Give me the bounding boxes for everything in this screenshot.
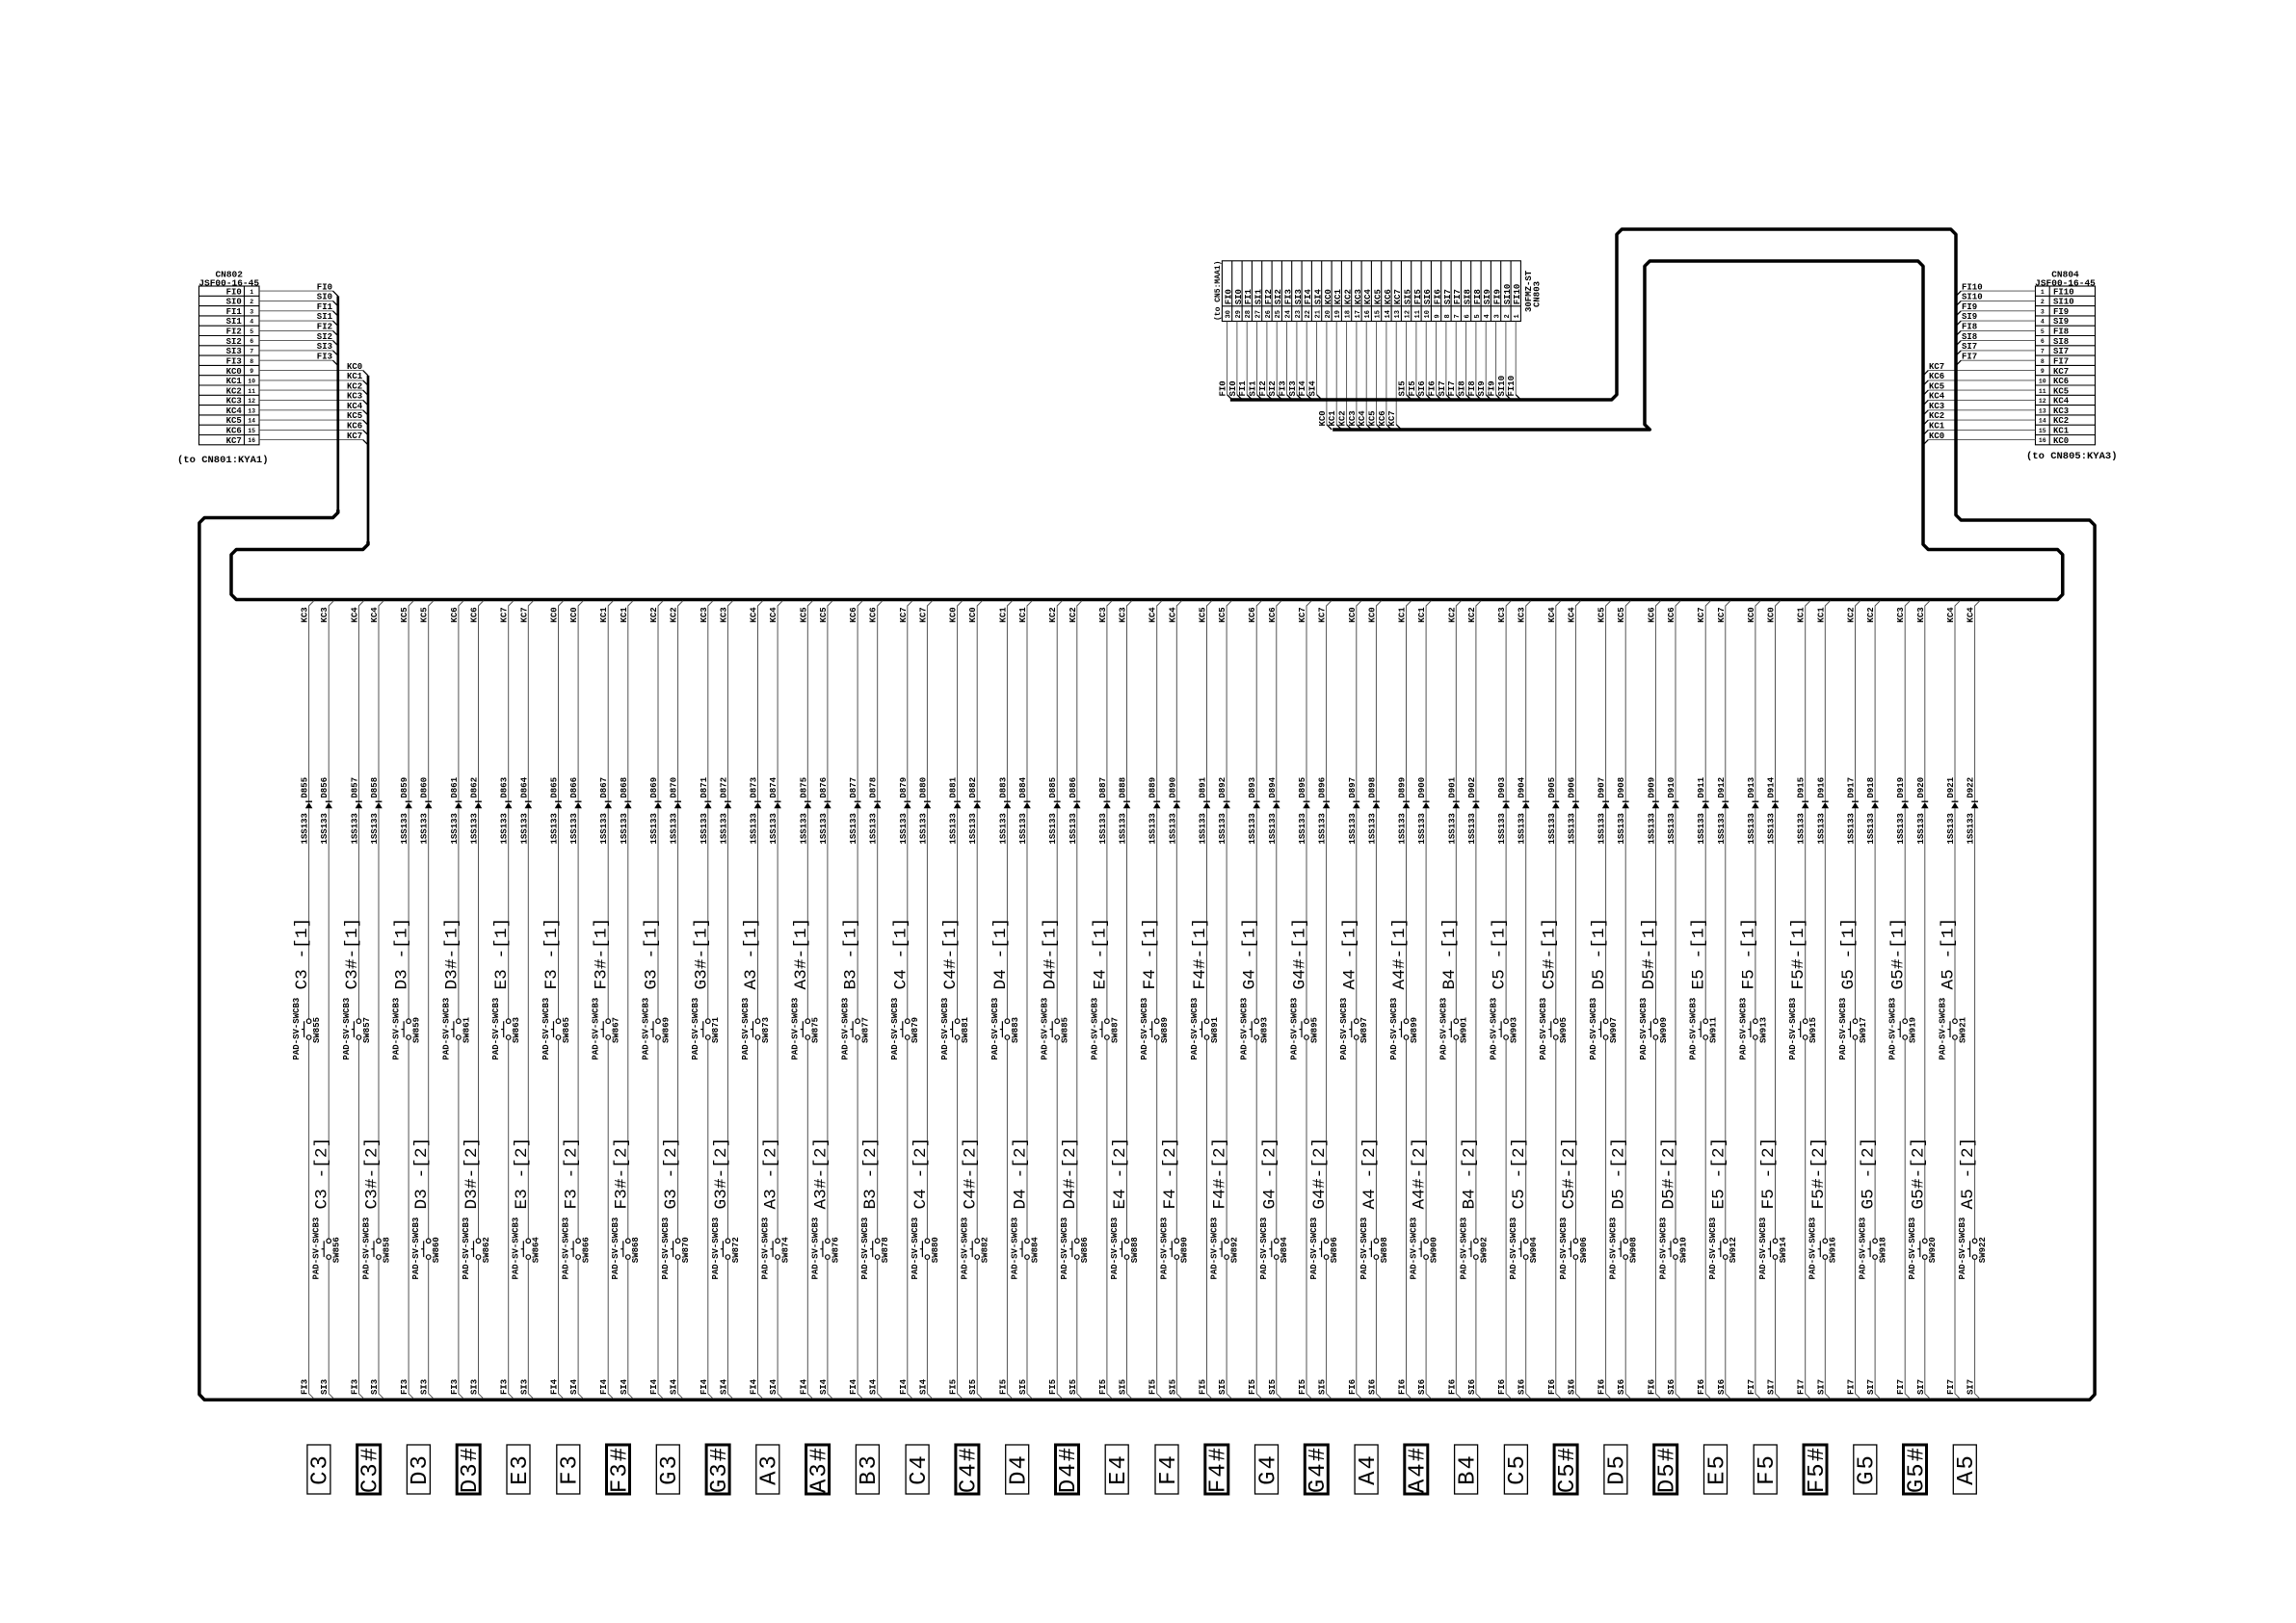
svg-text:1SS133: 1SS133 bbox=[719, 813, 728, 844]
svg-text:4: 4 bbox=[1484, 314, 1491, 318]
svg-text:D872: D872 bbox=[719, 777, 728, 798]
svg-text:2: 2 bbox=[250, 299, 253, 305]
svg-text:SW864: SW864 bbox=[532, 1237, 541, 1264]
svg-text:SW905: SW905 bbox=[1559, 1017, 1569, 1043]
svg-text:PAD-SV-SWCB3: PAD-SV-SWCB3 bbox=[361, 1217, 371, 1280]
svg-text:D892: D892 bbox=[1218, 777, 1227, 798]
svg-text:KC4: KC4 bbox=[370, 607, 380, 623]
svg-text:1SS133: 1SS133 bbox=[1697, 813, 1706, 844]
svg-text:SW892: SW892 bbox=[1230, 1237, 1240, 1263]
svg-text:PAD-SV-SWCB3: PAD-SV-SWCB3 bbox=[1639, 998, 1649, 1060]
svg-text:1SS133: 1SS133 bbox=[350, 813, 359, 844]
svg-text:D859: D859 bbox=[400, 777, 409, 798]
svg-text:C5 -[2]: C5 -[2] bbox=[1510, 1138, 1529, 1210]
svg-text:A4#-[2]: A4#-[2] bbox=[1411, 1138, 1430, 1210]
svg-text:E3 -[1]: E3 -[1] bbox=[492, 918, 512, 990]
svg-text:7: 7 bbox=[250, 349, 253, 355]
svg-text:SW908: SW908 bbox=[1629, 1237, 1639, 1263]
svg-text:SW884: SW884 bbox=[1030, 1237, 1040, 1264]
svg-text:KC4: KC4 bbox=[1148, 607, 1158, 623]
svg-text:1SS133: 1SS133 bbox=[1218, 813, 1227, 844]
svg-text:SW874: SW874 bbox=[781, 1237, 791, 1264]
svg-text:G5#-[2]: G5#-[2] bbox=[1909, 1138, 1928, 1210]
svg-text:SW860: SW860 bbox=[432, 1237, 441, 1263]
svg-text:SI4: SI4 bbox=[918, 1378, 928, 1395]
svg-text:D4: D4 bbox=[1007, 1453, 1033, 1485]
svg-text:KC6: KC6 bbox=[347, 422, 362, 432]
svg-text:D4#-[2]: D4#-[2] bbox=[1061, 1138, 1080, 1210]
svg-text:D909: D909 bbox=[1647, 777, 1656, 798]
svg-text:SW904: SW904 bbox=[1529, 1237, 1539, 1264]
svg-text:KC6: KC6 bbox=[1929, 372, 1944, 381]
svg-text:11: 11 bbox=[1414, 310, 1422, 318]
svg-text:D877: D877 bbox=[849, 777, 858, 798]
svg-text:SI7: SI7 bbox=[1438, 380, 1447, 396]
svg-text:SW856: SW856 bbox=[332, 1237, 342, 1263]
svg-text:SI7: SI7 bbox=[1916, 1379, 1926, 1395]
svg-text:PAD-SV-SWCB3: PAD-SV-SWCB3 bbox=[462, 1217, 471, 1280]
svg-text:KC2: KC2 bbox=[1048, 607, 1058, 622]
svg-text:D881: D881 bbox=[949, 776, 959, 798]
svg-text:SW900: SW900 bbox=[1430, 1237, 1439, 1263]
svg-text:KC5: KC5 bbox=[226, 416, 242, 426]
svg-text:D866: D866 bbox=[569, 777, 579, 798]
svg-text:KC7: KC7 bbox=[1717, 607, 1727, 622]
svg-text:KC1: KC1 bbox=[2053, 427, 2070, 436]
svg-text:SI10: SI10 bbox=[2053, 298, 2074, 307]
svg-text:13: 13 bbox=[248, 407, 255, 414]
svg-text:SI5: SI5 bbox=[1404, 289, 1413, 304]
svg-text:KC4: KC4 bbox=[769, 607, 779, 623]
svg-text:FI0: FI0 bbox=[317, 282, 332, 292]
svg-text:FI3: FI3 bbox=[1284, 289, 1294, 304]
svg-text:A3#-[2]: A3#-[2] bbox=[811, 1138, 831, 1210]
svg-text:7: 7 bbox=[1454, 314, 1462, 318]
svg-text:2: 2 bbox=[2041, 299, 2045, 305]
svg-text:PAD-SV-SWCB3: PAD-SV-SWCB3 bbox=[661, 1217, 671, 1280]
svg-text:SI9: SI9 bbox=[1477, 380, 1487, 396]
svg-text:FI5: FI5 bbox=[998, 1379, 1008, 1395]
svg-text:B3 -[2]: B3 -[2] bbox=[861, 1138, 881, 1210]
svg-text:SI9: SI9 bbox=[2053, 317, 2069, 327]
svg-text:8: 8 bbox=[2041, 358, 2045, 365]
svg-text:SW868: SW868 bbox=[631, 1237, 641, 1263]
svg-text:FI1: FI1 bbox=[1238, 380, 1248, 397]
svg-text:(to CN5:MAA1): (to CN5:MAA1) bbox=[1214, 261, 1223, 321]
svg-text:1SS133: 1SS133 bbox=[1367, 813, 1377, 844]
svg-text:FI6: FI6 bbox=[1447, 1379, 1457, 1395]
svg-text:B3: B3 bbox=[857, 1453, 883, 1485]
svg-text:FI10: FI10 bbox=[2053, 287, 2074, 297]
svg-text:15: 15 bbox=[2039, 428, 2046, 434]
svg-text:G4 -[2]: G4 -[2] bbox=[1260, 1138, 1280, 1210]
svg-text:1SS133: 1SS133 bbox=[649, 813, 659, 844]
svg-text:1SS133: 1SS133 bbox=[1098, 813, 1108, 844]
svg-text:25: 25 bbox=[1275, 310, 1282, 318]
svg-text:10: 10 bbox=[248, 379, 255, 385]
svg-text:SI4: SI4 bbox=[719, 1378, 728, 1395]
svg-text:SI5: SI5 bbox=[1168, 1379, 1177, 1395]
svg-text:12: 12 bbox=[2039, 398, 2046, 405]
svg-text:KC2: KC2 bbox=[2053, 416, 2069, 426]
svg-text:F3#: F3# bbox=[607, 1446, 633, 1493]
svg-text:KC6: KC6 bbox=[1248, 607, 1257, 622]
svg-text:SI6: SI6 bbox=[1567, 1379, 1576, 1395]
svg-text:1SS133: 1SS133 bbox=[1517, 813, 1527, 844]
svg-text:KC0: KC0 bbox=[347, 362, 362, 372]
svg-text:D871: D871 bbox=[699, 776, 709, 798]
svg-text:D921: D921 bbox=[1946, 776, 1956, 798]
svg-text:SW862: SW862 bbox=[482, 1237, 491, 1263]
svg-text:PAD-SV-SWCB3: PAD-SV-SWCB3 bbox=[1041, 998, 1050, 1060]
svg-text:PAD-SV-SWCB3: PAD-SV-SWCB3 bbox=[562, 1217, 571, 1280]
svg-text:PAD-SV-SWCB3: PAD-SV-SWCB3 bbox=[1389, 998, 1399, 1060]
svg-text:A3#-[1]: A3#-[1] bbox=[792, 918, 811, 990]
svg-text:C3: C3 bbox=[308, 1453, 334, 1485]
svg-text:PAD-SV-SWCB3: PAD-SV-SWCB3 bbox=[592, 998, 601, 1060]
svg-text:SW870: SW870 bbox=[681, 1237, 691, 1263]
svg-text:SI5: SI5 bbox=[1268, 1379, 1278, 1395]
svg-text:SI4: SI4 bbox=[869, 1378, 879, 1395]
svg-text:SW881: SW881 bbox=[961, 1016, 970, 1043]
svg-text:KC4: KC4 bbox=[1363, 288, 1373, 304]
svg-text:1SS133: 1SS133 bbox=[699, 813, 709, 844]
svg-text:PAD-SV-SWCB3: PAD-SV-SWCB3 bbox=[1708, 1217, 1718, 1280]
svg-text:FI0: FI0 bbox=[1219, 380, 1228, 396]
svg-text:D3#-[2]: D3#-[2] bbox=[462, 1138, 482, 1210]
svg-text:SI4: SI4 bbox=[670, 1378, 679, 1395]
svg-text:FI1: FI1 bbox=[226, 307, 243, 317]
svg-text:SI0: SI0 bbox=[1228, 380, 1238, 396]
svg-text:B4 -[2]: B4 -[2] bbox=[1460, 1138, 1479, 1210]
svg-text:SI5: SI5 bbox=[968, 1379, 978, 1395]
svg-text:14: 14 bbox=[1385, 310, 1392, 318]
svg-text:SI3: SI3 bbox=[519, 1379, 529, 1395]
svg-text:KC0: KC0 bbox=[2053, 436, 2069, 446]
svg-text:SI1: SI1 bbox=[1249, 380, 1258, 397]
svg-text:PAD-SV-SWCB3: PAD-SV-SWCB3 bbox=[512, 1217, 521, 1280]
svg-text:PAD-SV-SWCB3: PAD-SV-SWCB3 bbox=[1210, 1217, 1220, 1280]
svg-text:PAD-SV-SWCB3: PAD-SV-SWCB3 bbox=[1689, 998, 1699, 1060]
svg-text:(to CN801:KYA1): (to CN801:KYA1) bbox=[177, 455, 269, 466]
svg-text:SW882: SW882 bbox=[981, 1237, 990, 1263]
svg-text:D893: D893 bbox=[1248, 777, 1257, 798]
svg-text:PAD-SV-SWCB3: PAD-SV-SWCB3 bbox=[810, 1217, 820, 1280]
svg-text:1SS133: 1SS133 bbox=[1398, 813, 1408, 844]
svg-text:13: 13 bbox=[2039, 407, 2046, 414]
svg-text:1SS133: 1SS133 bbox=[968, 813, 978, 844]
svg-text:B4: B4 bbox=[1455, 1453, 1481, 1485]
svg-text:KC6: KC6 bbox=[450, 607, 460, 622]
svg-text:D876: D876 bbox=[819, 777, 829, 798]
svg-text:D889: D889 bbox=[1148, 777, 1158, 798]
svg-text:KC3: KC3 bbox=[2053, 406, 2069, 416]
svg-text:1SS133: 1SS133 bbox=[869, 813, 879, 844]
svg-text:D903: D903 bbox=[1497, 777, 1507, 798]
svg-text:A4 -[1]: A4 -[1] bbox=[1340, 918, 1359, 990]
svg-text:FI4: FI4 bbox=[849, 1378, 858, 1395]
svg-text:PAD-SV-SWCB3: PAD-SV-SWCB3 bbox=[312, 1217, 322, 1280]
svg-text:C5#-[1]: C5#-[1] bbox=[1540, 918, 1559, 990]
svg-text:FI4: FI4 bbox=[649, 1378, 659, 1395]
svg-text:KC0: KC0 bbox=[1929, 432, 1944, 441]
svg-text:C3#-[2]: C3#-[2] bbox=[363, 1138, 383, 1210]
svg-text:SW907: SW907 bbox=[1609, 1017, 1619, 1043]
svg-text:KC5: KC5 bbox=[1199, 607, 1208, 622]
svg-text:D3#-[1]: D3#-[1] bbox=[442, 918, 462, 990]
svg-text:D5 -[2]: D5 -[2] bbox=[1610, 1138, 1629, 1210]
svg-text:1SS133: 1SS133 bbox=[550, 813, 560, 844]
svg-text:SI6: SI6 bbox=[1423, 289, 1433, 304]
svg-text:SI4: SI4 bbox=[620, 1378, 629, 1395]
svg-text:SI7: SI7 bbox=[1866, 1379, 1876, 1395]
svg-text:9: 9 bbox=[1435, 314, 1442, 318]
svg-text:G5 -[1]: G5 -[1] bbox=[1839, 918, 1859, 990]
svg-text:SW906: SW906 bbox=[1579, 1237, 1589, 1263]
svg-text:1SS133: 1SS133 bbox=[1797, 813, 1807, 844]
svg-text:PAD-SV-SWCB3: PAD-SV-SWCB3 bbox=[1459, 1217, 1468, 1280]
svg-text:SW920: SW920 bbox=[1928, 1237, 1938, 1263]
svg-text:SW898: SW898 bbox=[1380, 1237, 1389, 1263]
svg-text:PAD-SV-SWCB3: PAD-SV-SWCB3 bbox=[1289, 998, 1299, 1060]
svg-text:D858: D858 bbox=[370, 777, 380, 798]
svg-text:D911: D911 bbox=[1697, 776, 1706, 798]
svg-text:PAD-SV-SWCB3: PAD-SV-SWCB3 bbox=[940, 998, 950, 1060]
svg-text:A5 -[2]: A5 -[2] bbox=[1959, 1138, 1978, 1210]
svg-text:SI9: SI9 bbox=[1483, 289, 1492, 304]
svg-text:SW888: SW888 bbox=[1130, 1237, 1140, 1263]
svg-text:PAD-SV-SWCB3: PAD-SV-SWCB3 bbox=[910, 1217, 920, 1280]
svg-text:1SS133: 1SS133 bbox=[1417, 813, 1427, 844]
svg-text:PAD-SV-SWCB3: PAD-SV-SWCB3 bbox=[1589, 998, 1598, 1060]
svg-text:D905: D905 bbox=[1547, 777, 1557, 798]
svg-text:C5#-[2]: C5#-[2] bbox=[1560, 1138, 1579, 1210]
svg-text:PAD-SV-SWCB3: PAD-SV-SWCB3 bbox=[342, 998, 352, 1060]
svg-text:D855: D855 bbox=[301, 777, 310, 798]
svg-text:D873: D873 bbox=[750, 777, 759, 798]
svg-text:SI3: SI3 bbox=[420, 1379, 430, 1395]
svg-text:KC3: KC3 bbox=[301, 607, 310, 622]
svg-text:1SS133: 1SS133 bbox=[370, 813, 380, 844]
svg-text:1SS133: 1SS133 bbox=[320, 813, 330, 844]
svg-text:KC3: KC3 bbox=[1497, 607, 1507, 622]
svg-text:4: 4 bbox=[2041, 319, 2045, 326]
svg-text:PAD-SV-SWCB3: PAD-SV-SWCB3 bbox=[1758, 1217, 1768, 1280]
svg-text:SW855: SW855 bbox=[312, 1017, 322, 1043]
svg-text:SI6: SI6 bbox=[1417, 1379, 1427, 1395]
svg-text:D883: D883 bbox=[998, 777, 1008, 798]
svg-text:SW886: SW886 bbox=[1080, 1237, 1090, 1263]
svg-text:FI6: FI6 bbox=[1348, 1379, 1358, 1395]
svg-text:A3 -[1]: A3 -[1] bbox=[742, 918, 761, 990]
svg-text:SI5: SI5 bbox=[1069, 1379, 1078, 1395]
svg-text:D865: D865 bbox=[550, 777, 560, 798]
svg-text:KC7: KC7 bbox=[1298, 607, 1307, 622]
svg-text:30: 30 bbox=[1226, 310, 1233, 318]
svg-text:PAD-SV-SWCB3: PAD-SV-SWCB3 bbox=[1859, 1217, 1868, 1280]
svg-text:KC2: KC2 bbox=[1344, 289, 1354, 304]
svg-text:D862: D862 bbox=[470, 777, 480, 798]
svg-text:16: 16 bbox=[248, 437, 255, 444]
svg-text:F4#: F4# bbox=[1206, 1446, 1232, 1493]
svg-text:1SS133: 1SS133 bbox=[1717, 813, 1727, 844]
svg-text:SW916: SW916 bbox=[1829, 1237, 1838, 1263]
svg-text:SI5: SI5 bbox=[1018, 1379, 1028, 1395]
svg-text:SI5: SI5 bbox=[1119, 1379, 1128, 1395]
svg-text:FI10: FI10 bbox=[1513, 284, 1522, 305]
svg-text:SW913: SW913 bbox=[1758, 1017, 1768, 1043]
svg-text:D5#-[2]: D5#-[2] bbox=[1660, 1138, 1679, 1210]
svg-text:12: 12 bbox=[248, 398, 255, 405]
svg-text:SW863: SW863 bbox=[512, 1017, 521, 1043]
svg-text:SI2: SI2 bbox=[1274, 289, 1283, 304]
svg-text:KC3: KC3 bbox=[1517, 607, 1527, 622]
svg-text:PAD-SV-SWCB3: PAD-SV-SWCB3 bbox=[411, 1217, 421, 1280]
svg-text:SW919: SW919 bbox=[1909, 1017, 1918, 1043]
svg-text:SW857: SW857 bbox=[362, 1017, 372, 1043]
svg-text:16: 16 bbox=[2039, 437, 2046, 444]
svg-text:D856: D856 bbox=[320, 777, 330, 798]
svg-text:1SS133: 1SS133 bbox=[799, 813, 808, 844]
svg-text:KC3: KC3 bbox=[1348, 410, 1358, 426]
svg-text:FI3: FI3 bbox=[400, 1379, 409, 1395]
svg-text:KC2: KC2 bbox=[1447, 607, 1457, 622]
svg-text:KC3: KC3 bbox=[320, 607, 330, 622]
svg-text:FI8: FI8 bbox=[1467, 380, 1477, 396]
svg-text:KC4: KC4 bbox=[1547, 607, 1557, 623]
svg-text:F3 -[1]: F3 -[1] bbox=[542, 918, 562, 990]
svg-text:C4 -[2]: C4 -[2] bbox=[911, 1138, 931, 1210]
svg-text:1SS133: 1SS133 bbox=[1318, 813, 1328, 844]
svg-text:D899: D899 bbox=[1398, 777, 1408, 798]
svg-text:PAD-SV-SWCB3: PAD-SV-SWCB3 bbox=[1110, 1217, 1120, 1280]
svg-text:FI7: FI7 bbox=[1447, 380, 1457, 396]
svg-text:KC3: KC3 bbox=[1916, 607, 1926, 622]
svg-text:KC5: KC5 bbox=[1617, 607, 1626, 622]
svg-text:SI5: SI5 bbox=[1218, 1379, 1227, 1395]
svg-text:SW918: SW918 bbox=[1879, 1237, 1888, 1263]
svg-text:C4#: C4# bbox=[957, 1446, 983, 1493]
svg-text:6: 6 bbox=[250, 338, 253, 345]
svg-text:SI10: SI10 bbox=[1503, 284, 1513, 305]
svg-text:KC1: KC1 bbox=[1816, 607, 1826, 623]
svg-text:KC7: KC7 bbox=[1318, 607, 1328, 622]
svg-text:KC4: KC4 bbox=[2053, 397, 2070, 406]
svg-text:FI5: FI5 bbox=[1098, 1379, 1108, 1395]
svg-text:27: 27 bbox=[1255, 310, 1263, 318]
svg-text:D891: D891 bbox=[1199, 776, 1208, 798]
svg-text:D5#-[1]: D5#-[1] bbox=[1640, 918, 1659, 990]
svg-text:KC4: KC4 bbox=[1966, 607, 1976, 623]
svg-text:E4 -[1]: E4 -[1] bbox=[1091, 918, 1110, 990]
svg-text:1SS133: 1SS133 bbox=[400, 813, 409, 844]
svg-text:D4#: D4# bbox=[1056, 1446, 1082, 1493]
svg-text:B3 -[1]: B3 -[1] bbox=[842, 918, 861, 990]
svg-text:F5 -[1]: F5 -[1] bbox=[1739, 918, 1758, 990]
svg-text:KC6: KC6 bbox=[849, 607, 858, 622]
svg-text:KC1: KC1 bbox=[620, 607, 629, 623]
svg-text:PAD-SV-SWCB3: PAD-SV-SWCB3 bbox=[392, 998, 402, 1060]
svg-text:SI2: SI2 bbox=[1268, 380, 1278, 396]
svg-text:E5 -[1]: E5 -[1] bbox=[1690, 918, 1709, 990]
svg-text:D863: D863 bbox=[500, 777, 510, 798]
svg-text:CN803: CN803 bbox=[1533, 281, 1543, 307]
svg-text:SW877: SW877 bbox=[861, 1017, 871, 1043]
svg-text:SI2: SI2 bbox=[317, 332, 332, 342]
svg-text:FI6: FI6 bbox=[1434, 289, 1443, 304]
svg-text:FI7: FI7 bbox=[1946, 1379, 1956, 1395]
svg-text:KC1: KC1 bbox=[1333, 288, 1343, 304]
svg-text:PAD-SV-SWCB3: PAD-SV-SWCB3 bbox=[641, 998, 650, 1060]
svg-text:D880: D880 bbox=[918, 777, 928, 798]
svg-text:E5 -[2]: E5 -[2] bbox=[1709, 1138, 1729, 1210]
svg-text:23: 23 bbox=[1295, 310, 1303, 318]
svg-text:KC0: KC0 bbox=[1767, 607, 1777, 622]
svg-text:1SS133: 1SS133 bbox=[1467, 813, 1477, 844]
svg-text:D5#: D5# bbox=[1655, 1446, 1681, 1493]
svg-text:FI6: FI6 bbox=[1697, 1379, 1706, 1395]
svg-text:PAD-SV-SWCB3: PAD-SV-SWCB3 bbox=[741, 998, 751, 1060]
svg-text:SW901: SW901 bbox=[1460, 1016, 1469, 1043]
svg-text:D901: D901 bbox=[1447, 776, 1457, 798]
svg-text:KC0: KC0 bbox=[968, 607, 978, 622]
svg-text:SI7: SI7 bbox=[1962, 342, 1977, 352]
svg-text:PAD-SV-SWCB3: PAD-SV-SWCB3 bbox=[611, 1217, 620, 1280]
svg-text:PAD-SV-SWCB3: PAD-SV-SWCB3 bbox=[1339, 998, 1349, 1060]
svg-text:1SS133: 1SS133 bbox=[1348, 813, 1358, 844]
svg-text:D888: D888 bbox=[1119, 777, 1128, 798]
svg-text:FI8: FI8 bbox=[2053, 327, 2069, 337]
svg-text:D5 -[1]: D5 -[1] bbox=[1590, 918, 1609, 990]
svg-text:8: 8 bbox=[250, 358, 253, 365]
svg-text:SI6: SI6 bbox=[1467, 1379, 1477, 1395]
svg-text:KC1: KC1 bbox=[226, 377, 243, 386]
svg-text:F4 -[2]: F4 -[2] bbox=[1161, 1138, 1180, 1210]
svg-text:PAD-SV-SWCB3: PAD-SV-SWCB3 bbox=[1838, 998, 1848, 1060]
svg-text:PAD-SV-SWCB3: PAD-SV-SWCB3 bbox=[1160, 1217, 1170, 1280]
svg-text:PAD-SV-SWCB3: PAD-SV-SWCB3 bbox=[1010, 1217, 1019, 1280]
svg-text:KC4: KC4 bbox=[347, 402, 363, 411]
svg-text:PAD-SV-SWCB3: PAD-SV-SWCB3 bbox=[1309, 1217, 1319, 1280]
svg-text:KC7: KC7 bbox=[1929, 362, 1944, 372]
svg-text:PAD-SV-SWCB3: PAD-SV-SWCB3 bbox=[841, 998, 851, 1060]
svg-text:D914: D914 bbox=[1767, 776, 1777, 798]
svg-text:KC7: KC7 bbox=[1387, 410, 1397, 426]
svg-text:KC5: KC5 bbox=[1218, 607, 1227, 622]
svg-text:D906: D906 bbox=[1567, 777, 1576, 798]
svg-text:FI2: FI2 bbox=[226, 327, 242, 337]
svg-text:SW890: SW890 bbox=[1180, 1237, 1190, 1263]
svg-text:FI4: FI4 bbox=[599, 1378, 609, 1395]
svg-text:6: 6 bbox=[1465, 314, 1472, 318]
svg-text:D5: D5 bbox=[1605, 1453, 1631, 1485]
svg-text:PAD-SV-SWCB3: PAD-SV-SWCB3 bbox=[990, 998, 1000, 1060]
svg-text:PAD-SV-SWCB3: PAD-SV-SWCB3 bbox=[1060, 1217, 1069, 1280]
svg-text:A4#-[1]: A4#-[1] bbox=[1390, 918, 1410, 990]
svg-text:1SS133: 1SS133 bbox=[1268, 813, 1278, 844]
svg-text:1SS133: 1SS133 bbox=[1168, 813, 1177, 844]
svg-text:1SS133: 1SS133 bbox=[1547, 813, 1557, 844]
svg-text:SW917: SW917 bbox=[1859, 1017, 1868, 1043]
svg-text:1SS133: 1SS133 bbox=[1617, 813, 1626, 844]
svg-text:KC5: KC5 bbox=[420, 607, 430, 622]
svg-text:SI4: SI4 bbox=[819, 1378, 829, 1395]
svg-text:1SS133: 1SS133 bbox=[1069, 813, 1078, 844]
svg-text:PAD-SV-SWCB3: PAD-SV-SWCB3 bbox=[1410, 1217, 1419, 1280]
svg-text:1SS133: 1SS133 bbox=[1497, 813, 1507, 844]
svg-text:SW922: SW922 bbox=[1978, 1237, 1988, 1263]
svg-text:D902: D902 bbox=[1467, 777, 1477, 798]
